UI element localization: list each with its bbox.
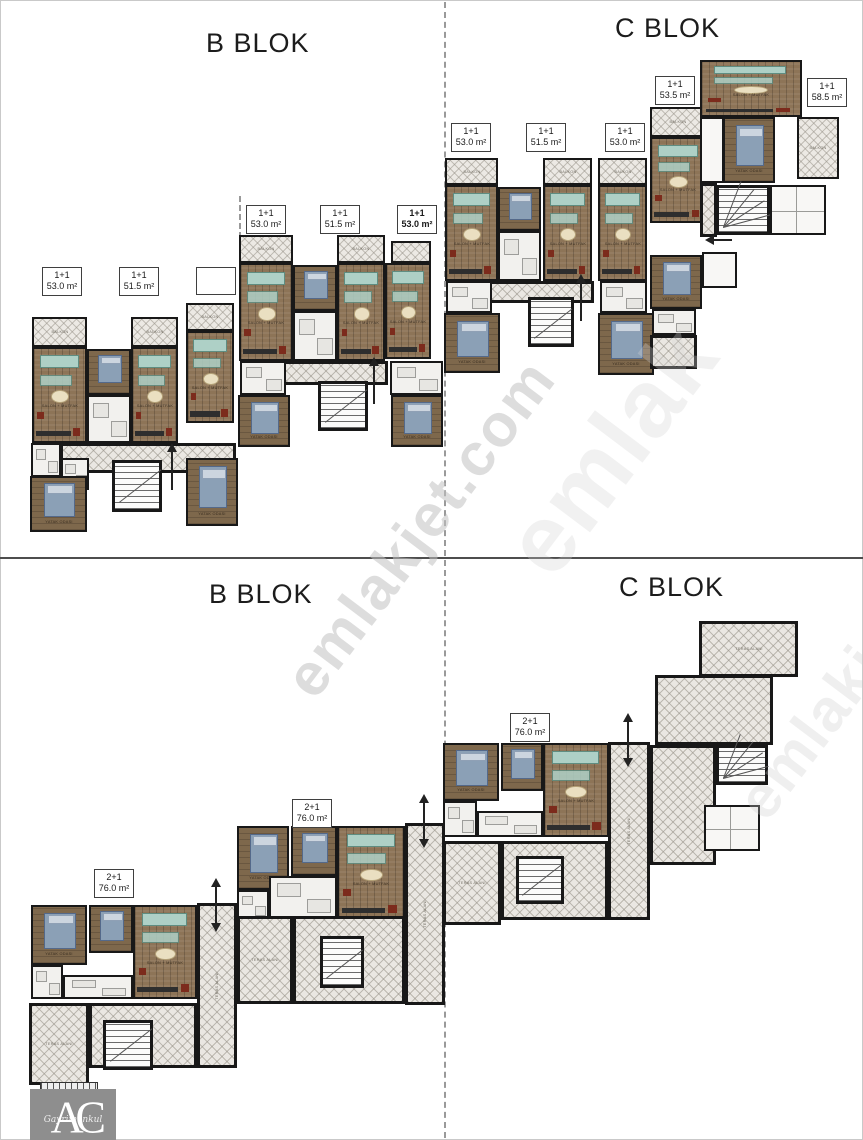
sofa [247,272,285,285]
sofa [138,375,165,386]
bed-pillow [739,128,763,138]
room-label: YATAK ODASI [735,169,762,173]
coffee-table [669,176,688,188]
living-room: SALON + MUTFAK [445,185,498,281]
bed-pillow [101,357,121,364]
sofa [247,291,278,302]
room-label: TERAS ALANI [251,958,278,962]
bath-fixture [48,461,59,473]
balcony: BALKON [543,158,592,185]
bath-fixture [72,980,96,988]
floor-divider-line [0,557,863,559]
bath-fixture [242,896,254,906]
bathroom [31,443,61,477]
bath-fixture [93,403,109,418]
balcony: BALKON [32,317,87,347]
room-label: BALKON [146,330,163,334]
balcony: BALKON [131,317,178,347]
room-label: YATAK ODASI [45,520,72,524]
bathroom [63,975,133,999]
balcony: BALKON [337,235,385,263]
arrow-head-up [369,357,379,366]
room-label: YATAK ODASI [250,435,277,439]
living-room: SALON + MUTFAK [543,743,609,837]
kitchen-counter [243,349,277,355]
bathroom [652,309,696,335]
bath-fixture [485,816,508,825]
room-label: YATAK ODASI [457,788,484,792]
coffee-table [155,948,176,961]
living-room: SALON + MUTFAK [700,60,802,117]
living-room: SALON + MUTFAK [598,185,647,281]
unit-label: 1+151.5 m² [320,205,360,234]
bed-pillow [48,915,74,924]
stair-diagonal [534,308,572,338]
tv-unit [390,328,395,335]
terrace-area [650,335,697,369]
kitchen-counter [547,825,589,830]
room-label: SALON + MUTFAK [353,882,389,886]
balcony: BALKON [650,107,706,137]
room-label: YATAK ODASI [458,360,485,364]
bath-fixture [448,807,460,819]
bath-fixture [397,367,416,378]
kitchen-appliance [592,822,601,830]
arrow-shaft [373,365,375,404]
stairwell [318,381,368,431]
room-label: BALKON [669,120,686,124]
bed [44,913,75,950]
bedroom: YATAK ODASI [443,743,499,801]
bed [251,402,280,434]
bed-pillow [511,195,531,202]
unit-label: 1+158.5 m² [807,78,847,107]
kitchen-appliance [419,344,425,352]
kitchen-counter [137,987,178,992]
sofa [453,213,483,224]
stairwell [716,745,768,785]
room-label: SALON + MUTFAK [558,799,594,803]
arrow-head-down [419,839,429,848]
tv-unit [139,968,147,975]
room-label: SALON + MUTFAK [136,404,172,408]
bed-pillow [253,836,277,845]
kitchen-counter [190,411,220,416]
bath-fixture [102,988,126,996]
living-room: SALON + MUTFAK [131,347,178,443]
arrow-head-up [576,274,586,283]
living-room: SALON + MUTFAK [543,185,592,281]
living-room: SALON + MUTFAK [337,263,385,361]
room-label: SALON + MUTFAK [660,188,696,192]
bed-pillow [307,273,327,280]
living-room: SALON + MUTFAK [385,263,431,359]
block-separator-short [239,196,241,238]
stairwell [103,1020,153,1070]
bed [509,193,533,220]
bath-fixture [277,883,301,896]
sofa [453,193,490,206]
unit-label: 1+151.5 m² [119,267,159,296]
kitchen-appliance [372,346,378,354]
bed-pillow [460,753,486,762]
balcony: BALKON [797,117,839,179]
stair-diagonal [119,470,161,503]
tv-unit [708,98,721,102]
terrace-area [700,183,717,237]
stairwell [112,460,162,512]
bath-fixture [676,323,692,332]
arrow-shaft [171,451,173,490]
kitchen-appliance [221,409,227,417]
agency-logo: AC Gayrimenkul [30,1089,116,1140]
bathroom [390,361,443,395]
room-label: SALON + MUTFAK [147,961,183,965]
kitchen-appliance [776,108,790,113]
bath-fixture [299,319,315,335]
room-label: BALKON [257,247,274,251]
unit-label: 1+153.0 m² [605,123,645,152]
utility-room [770,185,826,235]
direction-arrow [706,234,732,246]
sofa [347,834,395,847]
room-label: YATAK ODASI [662,297,689,301]
kitchen-counter [547,269,578,275]
sofa [714,77,773,84]
bedroom [498,187,541,231]
bed [511,749,534,778]
bed-pillow [202,469,226,479]
elevator-arrow [622,714,634,766]
arrow-shaft [714,239,732,241]
bedroom [87,349,131,395]
kitchen-counter [341,349,371,355]
terrace-area: TERAS ALANI [29,1003,89,1085]
bed [250,834,279,873]
kitchen-appliance [634,266,640,274]
room-label: SALON + MUTFAK [192,385,228,389]
bath-fixture [317,338,333,355]
room-partition [706,829,758,830]
unit-label: 1+153.5 m² [655,76,695,105]
entrance-arrow [166,444,178,490]
bed [302,833,328,864]
kitchen-counter [135,431,164,437]
bath-fixture [111,421,127,437]
arrow-shaft [580,282,582,321]
stair-fan-line [723,189,755,228]
terrace-area: TERAS ALANI [443,841,501,925]
bed-pillow [514,751,533,758]
arrow-head-down [623,758,633,767]
bed [663,262,692,295]
bath-fixture [419,379,438,391]
tv-unit [37,412,44,419]
room-label: SALON + MUTFAK [453,242,489,246]
stair-diagonal [326,950,363,979]
bed-pillow [103,913,123,920]
bed [457,321,488,358]
coffee-table [565,786,587,799]
unit-label: 2+176.0 m² [292,799,332,828]
bathroom [269,876,337,918]
sofa [40,375,72,386]
room-label: BALKON [201,315,218,319]
bath-fixture [49,983,61,995]
kitchen-appliance [484,266,491,274]
bath-fixture [462,820,474,832]
room-label: BALKON [463,169,480,173]
kitchen-counter [706,109,773,112]
bed [98,355,122,383]
terrace-area: TERAS ALANI [405,823,445,1005]
balcony [391,241,431,263]
room-label: SALON + MUTFAK [390,320,426,324]
room-label: TERAS ALANI [627,817,631,844]
kitchen-appliance [181,984,189,992]
room-label: YATAK ODASI [403,435,430,439]
entrance-arrow [575,275,587,321]
utility-room [700,117,724,183]
stairwell [320,936,364,988]
room-label: TERAS ALANI [458,881,485,885]
unit-label: 1+153.0 m² [451,123,491,152]
unit-label: 2+176.0 m² [94,869,134,898]
bed [404,402,433,434]
room-label: SALON + MUTFAK [343,321,379,325]
bathroom [498,231,541,281]
bed-pillow [305,835,326,843]
bathroom [443,801,477,837]
top-c-blok-title: C BLOK [615,13,720,44]
tv-unit [603,250,609,257]
unit-label: 1+153.0 m² [42,267,82,296]
sofa [550,213,578,224]
sofa [344,291,372,302]
bathroom [293,311,337,361]
room-label: TERAS ALANI [735,647,762,651]
bath-fixture [504,239,519,255]
tv-unit [191,393,197,400]
bed-pillow [47,485,73,493]
room-label: YATAK ODASI [45,952,72,956]
bottom-c-blok-title: C BLOK [619,572,724,603]
tv-unit [136,412,142,419]
unit-label-empty [196,267,236,295]
sofa [605,213,633,224]
stair-fan-line [723,214,771,228]
logo-script-text: Gayrimenkul [44,1115,103,1125]
room-label: SALON + MUTFAK [733,93,769,97]
room-label: TERAS ALANI [45,1042,72,1046]
arrow-head-up [419,794,429,803]
sofa [658,145,697,157]
stairwell [528,297,574,347]
sofa [344,272,378,285]
living-room: SALON + MUTFAK [337,826,405,920]
bedroom [89,905,133,953]
bed-pillow [615,323,641,332]
room-label: SALON + MUTFAK [549,242,585,246]
bath-fixture [514,825,537,834]
bed-pillow [666,264,690,272]
bedroom: YATAK ODASI [650,255,702,309]
tv-unit [549,806,557,813]
room-label: YATAK ODASI [198,512,225,516]
bed [100,911,124,940]
balcony: BALKON [598,158,647,185]
bedroom: YATAK ODASI [598,313,654,375]
bed [199,466,228,508]
bedroom: YATAK ODASI [30,476,87,532]
bath-fixture [36,971,48,982]
living-room: SALON + MUTFAK [32,347,87,443]
kitchen-counter [602,269,633,275]
bathroom [477,811,543,837]
bath-fixture [307,899,331,913]
stairwell [716,185,770,235]
tv-unit [244,329,251,337]
terrace-area [655,675,773,745]
sofa [40,355,79,368]
elevator-arrow [418,795,430,847]
kitchen-appliance [73,428,80,436]
bed [456,750,487,785]
sofa [142,913,187,926]
kitchen-counter [342,908,386,913]
room-label: BALKON [614,169,631,173]
floor-plan-sheet: B BLOK C BLOK B BLOK C BLOK BALKONBALKON… [0,0,863,1140]
coffee-table [354,307,370,320]
utility-room [702,252,737,288]
bath-fixture [626,298,643,309]
sofa [658,162,690,172]
sofa [714,66,787,74]
tv-unit [548,250,554,257]
bath-fixture [65,464,75,474]
arrow-shaft [215,886,217,924]
coffee-table [401,306,416,319]
terrace-area: TERAS ALANI [699,621,798,677]
coffee-table [203,373,219,386]
bed-pillow [461,323,487,332]
sofa [392,291,418,302]
tv-unit [342,329,348,337]
kitchen-counter [389,347,418,353]
tv-unit [450,250,456,257]
living-room: SALON + MUTFAK [239,263,293,361]
bath-fixture [255,906,267,916]
sofa [347,853,386,864]
arrow-head-up [167,443,177,452]
balcony: BALKON [239,235,293,263]
bathroom [446,281,492,313]
bathroom [87,395,131,443]
coffee-table [147,390,163,403]
arrow-head-up [623,713,633,722]
bedroom: YATAK ODASI [238,395,290,447]
bathroom [31,965,63,999]
living-room: SALON + MUTFAK [186,331,234,423]
room-label: BALKON [51,330,68,334]
balcony: BALKON [445,158,498,185]
bedroom [501,743,543,791]
unit-label: 1+153.0 m² [397,205,437,234]
room-label: BALKON [559,169,576,173]
kitchen-appliance [692,210,699,217]
bed [736,125,765,165]
sofa [142,932,179,943]
balcony: BALKON [186,303,234,331]
bath-fixture [658,314,674,323]
room-label: BALKON [809,146,826,150]
living-room: SALON + MUTFAK [650,137,706,223]
coffee-table [560,228,576,241]
sofa [193,358,221,369]
unit-label: 2+176.0 m² [510,713,550,742]
room-label: SALON + MUTFAK [41,404,77,408]
sofa [138,355,171,368]
kitchen-appliance [388,905,397,913]
sofa [552,770,590,781]
bedroom [293,265,337,311]
room-label: SALON + MUTFAK [248,321,284,325]
bath-fixture [606,287,623,297]
bath-fixture [522,258,537,275]
coffee-table [463,228,481,241]
elevator-arrow [210,879,222,931]
sofa [552,751,599,764]
kitchen-counter [36,431,71,437]
stair-diagonal [325,389,367,422]
coffee-table [360,869,382,882]
unit-label: 1+151.5 m² [526,123,566,152]
top-b-blok-title: B BLOK [206,28,310,59]
tv-unit [655,195,662,202]
sofa [193,339,227,352]
bedroom: YATAK ODASI [31,905,87,965]
room-partition [772,211,824,212]
bottom-b-blok-title: B BLOK [209,579,313,610]
bed [611,321,642,359]
bedroom [291,826,337,876]
stairwell [516,856,564,904]
room-label: TERAS ALANI [423,900,427,927]
arrow-shaft [627,721,629,759]
bedroom: YATAK ODASI [186,458,238,526]
bed-pillow [254,404,278,412]
room-label: YATAK ODASI [612,362,639,366]
coffee-table [51,390,69,403]
bed-pillow [407,404,431,412]
arrow-shaft [423,802,425,840]
kitchen-counter [654,212,689,217]
bath-fixture [36,449,47,460]
coffee-table [615,228,631,241]
bathroom [600,281,647,313]
sofa [550,193,584,206]
utility-room [704,805,760,851]
tv-unit [343,889,351,896]
room-label: BALKON [352,247,369,251]
stair-diagonal [110,1028,152,1061]
terrace-area: TERAS ALANI [237,916,293,1004]
bed [44,483,76,517]
bathroom [240,361,286,395]
coffee-table [258,307,276,320]
bedroom: YATAK ODASI [723,117,775,183]
room-label: SALON + MUTFAK [604,242,640,246]
